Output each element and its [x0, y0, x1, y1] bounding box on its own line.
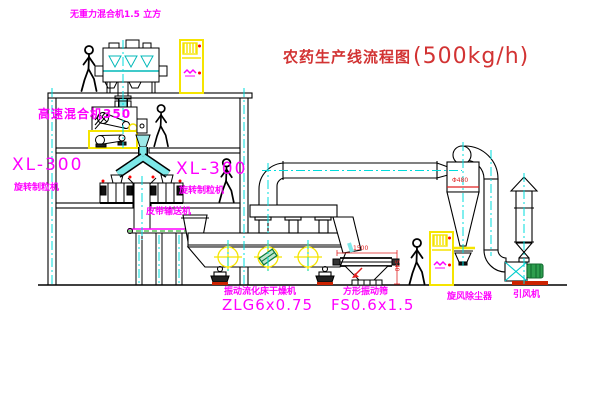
- title-text: 农药生产线流程图: [283, 46, 411, 67]
- dim-sieve-length: 1500: [353, 246, 368, 252]
- induced-draft-fan: [505, 262, 548, 285]
- y-duct: [118, 157, 168, 174]
- label-gravity-mixer: 无重力混合机1.5 立方: [70, 11, 161, 20]
- label-belt-conveyor: 皮带输送机: [146, 208, 191, 217]
- drawing-title: 农药生产线流程图 (500kg/h): [283, 44, 529, 69]
- label-granulator-left-model: XL-300: [12, 157, 83, 174]
- person-second-floor: [154, 105, 168, 146]
- person-ground-floor: [410, 239, 425, 284]
- exhaust-duct: [259, 161, 448, 205]
- control-cabinet-upper: [180, 40, 203, 93]
- label-fan: 引风机: [513, 291, 540, 300]
- label-granulator-left-name: 旋转制粒机: [14, 184, 59, 193]
- granulator-left: [100, 175, 133, 203]
- cad-flow-diagram: 农药生产线流程图 (500kg/h) 无重力混合机1.5 立方 高速混合机350…: [0, 0, 600, 403]
- control-cabinet-ground: [430, 232, 453, 285]
- label-sieve-model: FS0.6x1.5: [331, 298, 414, 313]
- title-capacity: (500kg/h): [413, 44, 529, 69]
- label-dryer-model: ZLG6x0.75: [222, 298, 313, 313]
- label-cyclone: 旋风除尘器: [447, 293, 492, 302]
- dim-sieve-height: 540: [393, 260, 399, 271]
- dim-cyclone-diameter: Φ480: [452, 178, 468, 184]
- fluid-bed-dryer: [181, 205, 361, 285]
- label-high-speed-mixer: 高速混合机350: [38, 108, 131, 120]
- label-granulator-right-name: 旋转制粒机: [179, 187, 224, 196]
- label-granulator-right-model: XL-300: [176, 161, 247, 178]
- person-top-floor: [82, 46, 97, 91]
